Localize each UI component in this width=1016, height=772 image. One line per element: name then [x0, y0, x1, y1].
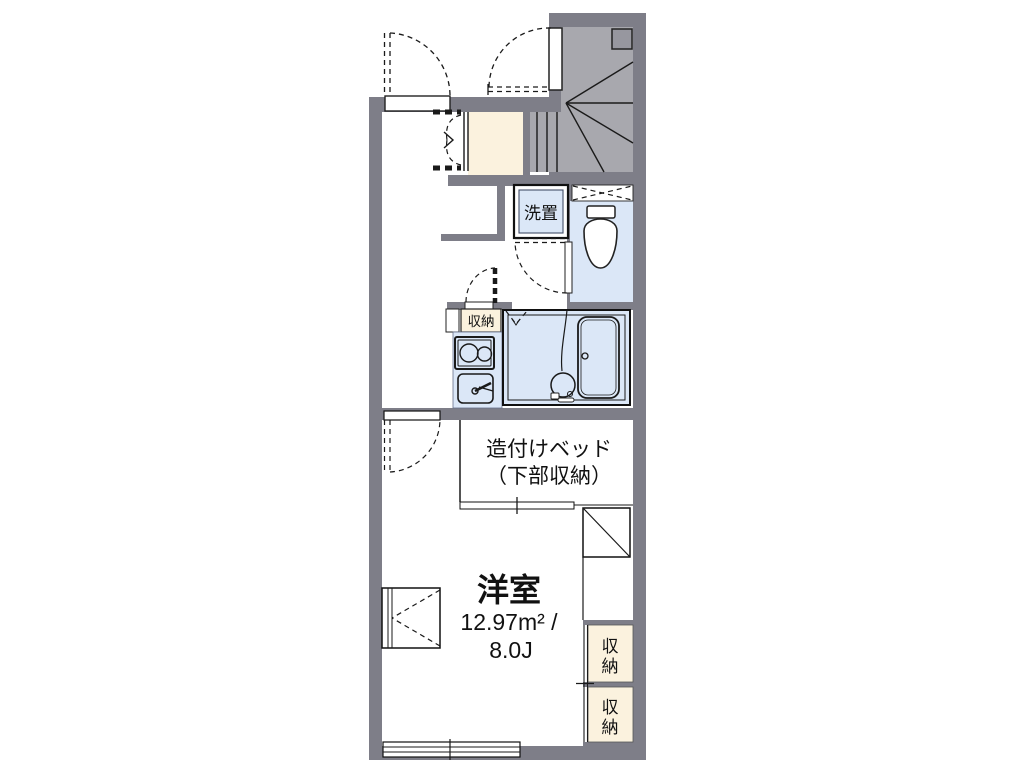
wall-washroom-left	[441, 234, 505, 241]
storage-door-leaf	[385, 96, 450, 111]
wall-entry-stairs	[523, 112, 530, 175]
entrance-door-leaf	[549, 28, 562, 90]
louver-window	[572, 185, 633, 201]
hall-closet: 収納	[446, 268, 501, 332]
entrance-door-swing	[488, 28, 551, 95]
entry-folding-door	[433, 112, 468, 171]
toilet-icon	[584, 206, 617, 268]
room-area-label: 12.97m² /	[460, 609, 558, 635]
wall-corridor-right	[497, 186, 505, 234]
hall-closet-label: 収納	[468, 314, 495, 329]
side-window	[384, 411, 440, 472]
bathroom	[503, 302, 630, 405]
main-room: 洋室 12.97m² / 8.0J	[460, 572, 558, 663]
washer-place: 洗置	[514, 185, 568, 238]
bay-window	[382, 588, 440, 648]
room-name-label: 洋室	[477, 572, 541, 608]
sliding-window	[383, 739, 520, 760]
floor-plan: 洗置 収納	[0, 0, 1016, 772]
closet-lower: 収 納	[588, 687, 633, 742]
kitchen	[453, 332, 502, 408]
closet-upper: 収 納	[588, 625, 633, 682]
bath-outline	[503, 310, 630, 405]
bed-label-line1: 造付けベッド	[486, 438, 612, 461]
closet-lower-label-top: 収	[602, 698, 619, 717]
closet-lower-label-bottom: 納	[602, 718, 619, 737]
refrigerator-space	[583, 508, 630, 620]
stair-shaft	[612, 29, 632, 49]
room-size-label: 8.0J	[489, 637, 532, 663]
floor-plan-drawing: 洗置 収納	[0, 0, 1016, 772]
washer-label: 洗置	[524, 204, 558, 223]
entrance-hall-floor	[468, 112, 523, 175]
storage-door-swing	[385, 33, 451, 111]
toilet-door	[515, 239, 572, 294]
built-in-bed: 造付けベッド （下部収納）	[460, 420, 633, 514]
wall-left	[369, 97, 382, 760]
closets: 収 納 収 納	[576, 620, 633, 746]
pipe-space	[446, 309, 459, 332]
closet-upper-label-bottom: 納	[602, 657, 619, 676]
bath-entry-opening	[512, 302, 567, 310]
bed-label-line2: （下部収納）	[486, 465, 612, 488]
closet-upper-label-top: 収	[602, 637, 619, 656]
